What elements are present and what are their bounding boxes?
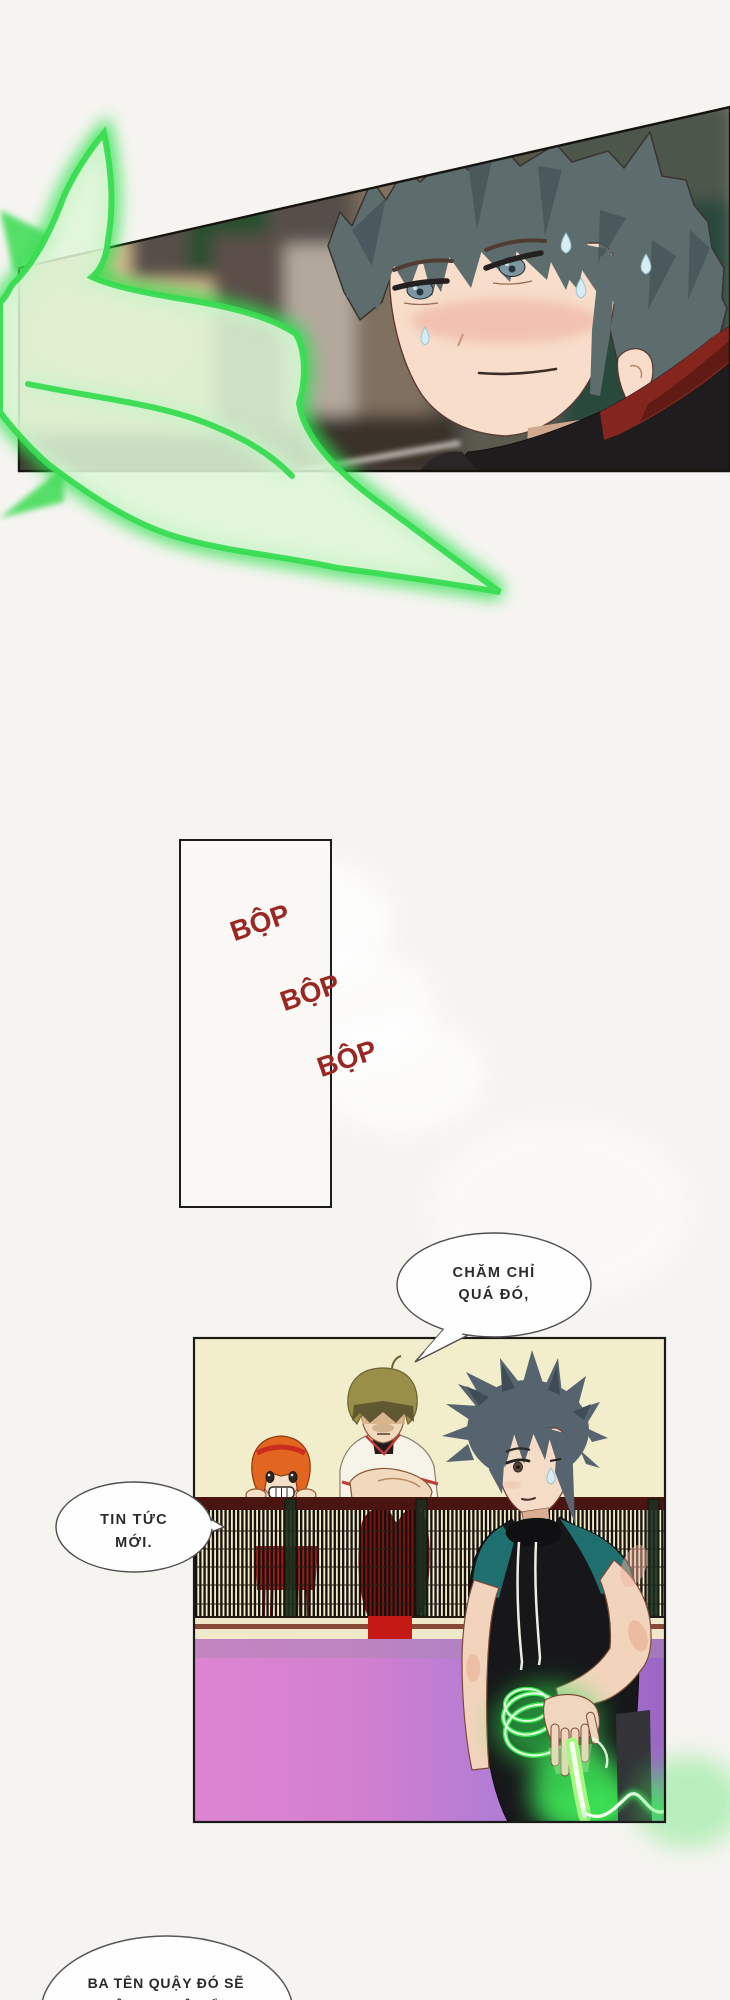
svg-text:BA TÊN QUẬY ĐÓ SẼ: BA TÊN QUẬY ĐÓ SẼ	[88, 1974, 245, 1991]
svg-text:QUÁ ĐÓ,: QUÁ ĐÓ,	[458, 1285, 529, 1303]
svg-text:MỚI.: MỚI.	[115, 1533, 153, 1551]
svg-text:CHĂM CHỈ: CHĂM CHỈ	[453, 1264, 536, 1281]
svg-text:TIN TỨC: TIN TỨC	[100, 1510, 168, 1528]
